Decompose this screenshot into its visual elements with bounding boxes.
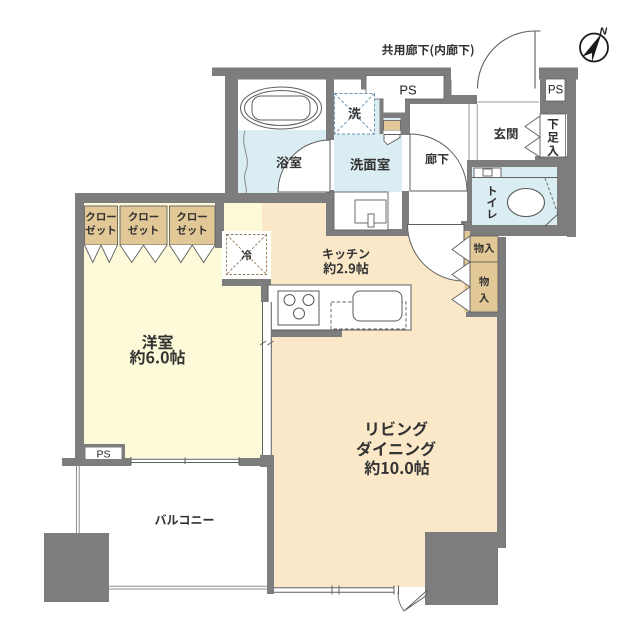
- svg-text:N: N: [600, 26, 608, 38]
- svg-text:PS: PS: [399, 83, 417, 98]
- svg-text:PS: PS: [96, 449, 110, 461]
- svg-text:PS: PS: [548, 85, 564, 97]
